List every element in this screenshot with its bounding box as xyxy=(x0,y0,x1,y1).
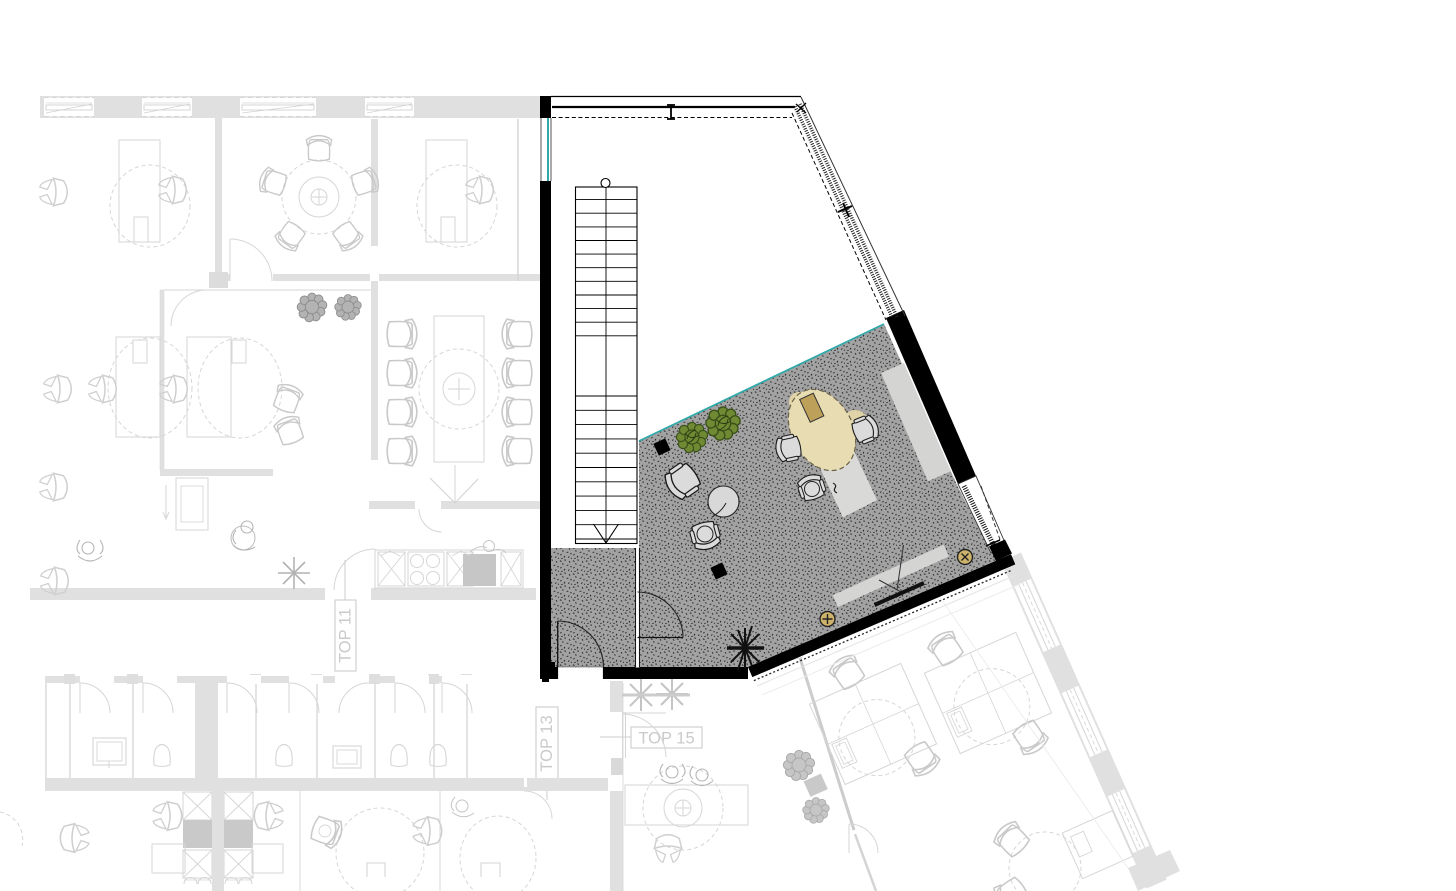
svg-text:TOP 13: TOP 13 xyxy=(538,715,556,771)
svg-text:TOP 15: TOP 15 xyxy=(638,730,694,748)
svg-text:TOP 11: TOP 11 xyxy=(337,608,355,663)
